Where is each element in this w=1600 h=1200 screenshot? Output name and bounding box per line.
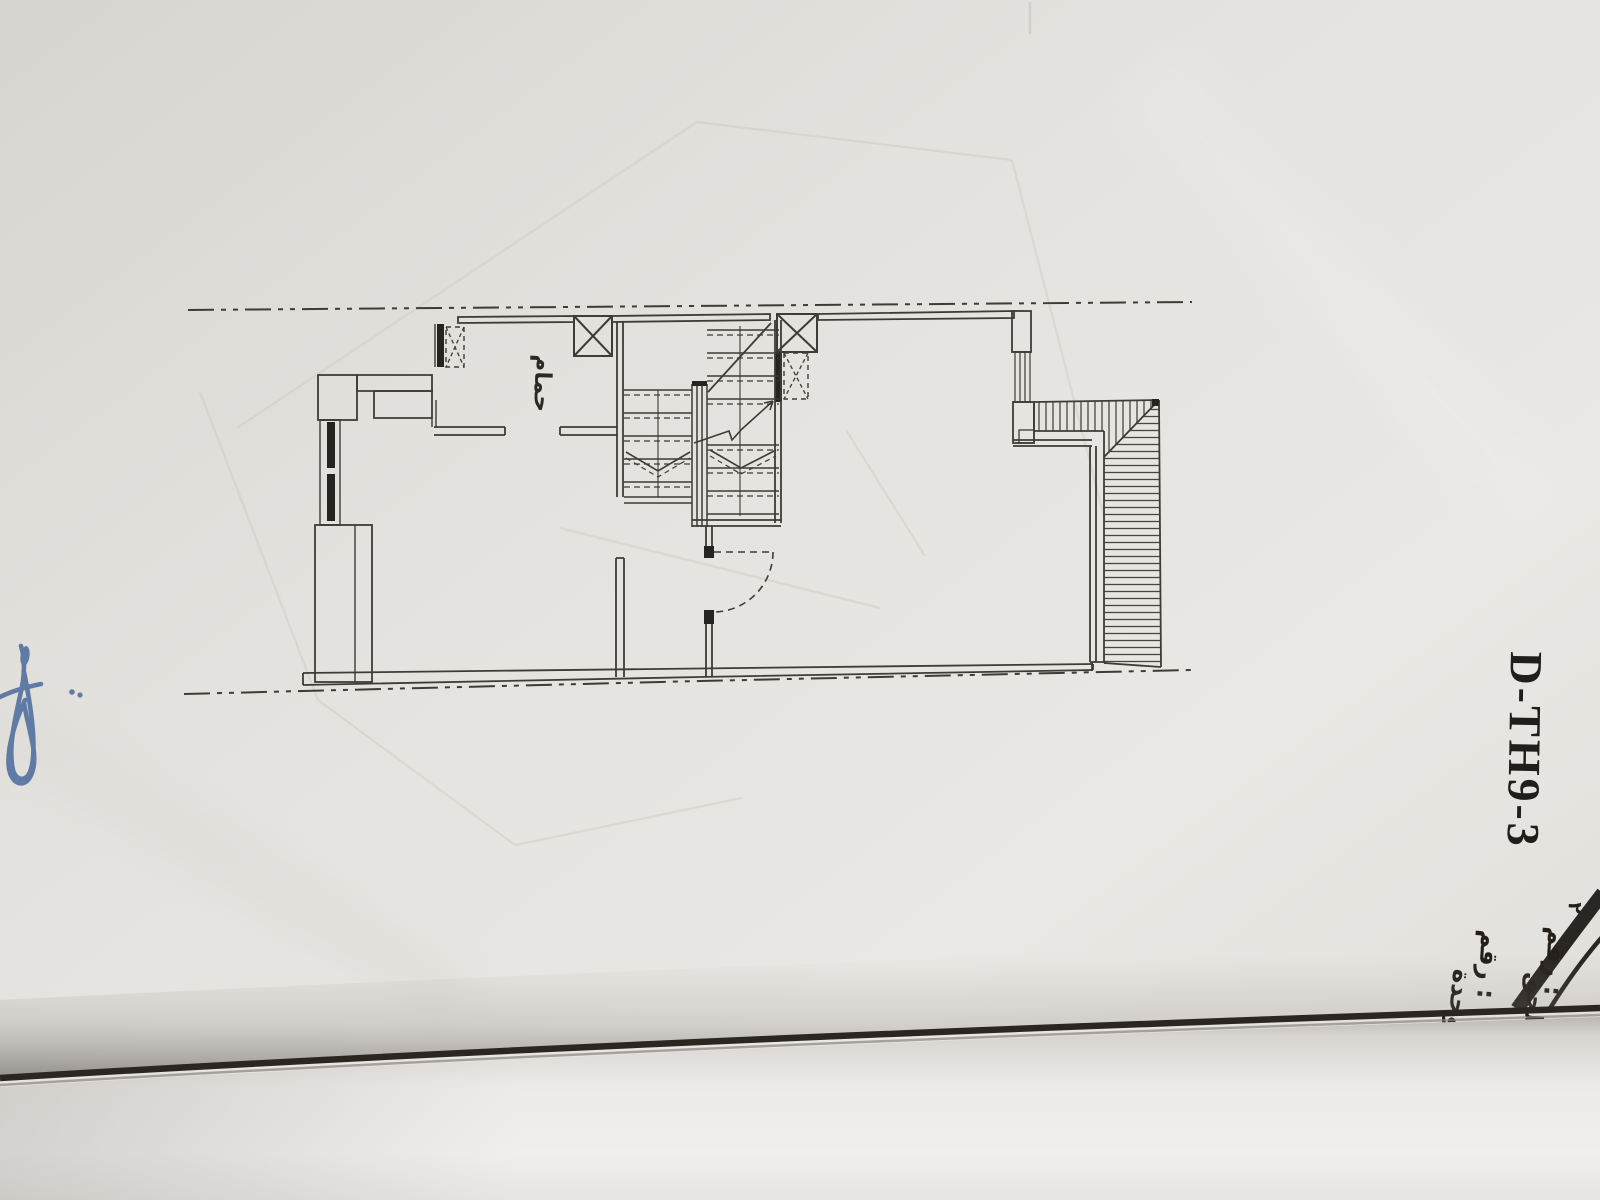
annotation-right-bottom: ملحق [1517,971,1552,1040]
annotation-left-top: رقم : [1471,929,1505,1000]
sheet-code-label: D-TH9-3 [1497,651,1553,849]
paper-sheet [0,0,1600,1200]
room-label-bathroom: حمام [528,354,556,412]
annotation-number-mark: ٢ [1563,901,1586,914]
photographed-drawing-sheet: D-TH9-3 حمام ٢ رقم : ملحق رقم : وحدة [0,0,1600,1200]
floor-plan-drawing [0,0,1600,1200]
